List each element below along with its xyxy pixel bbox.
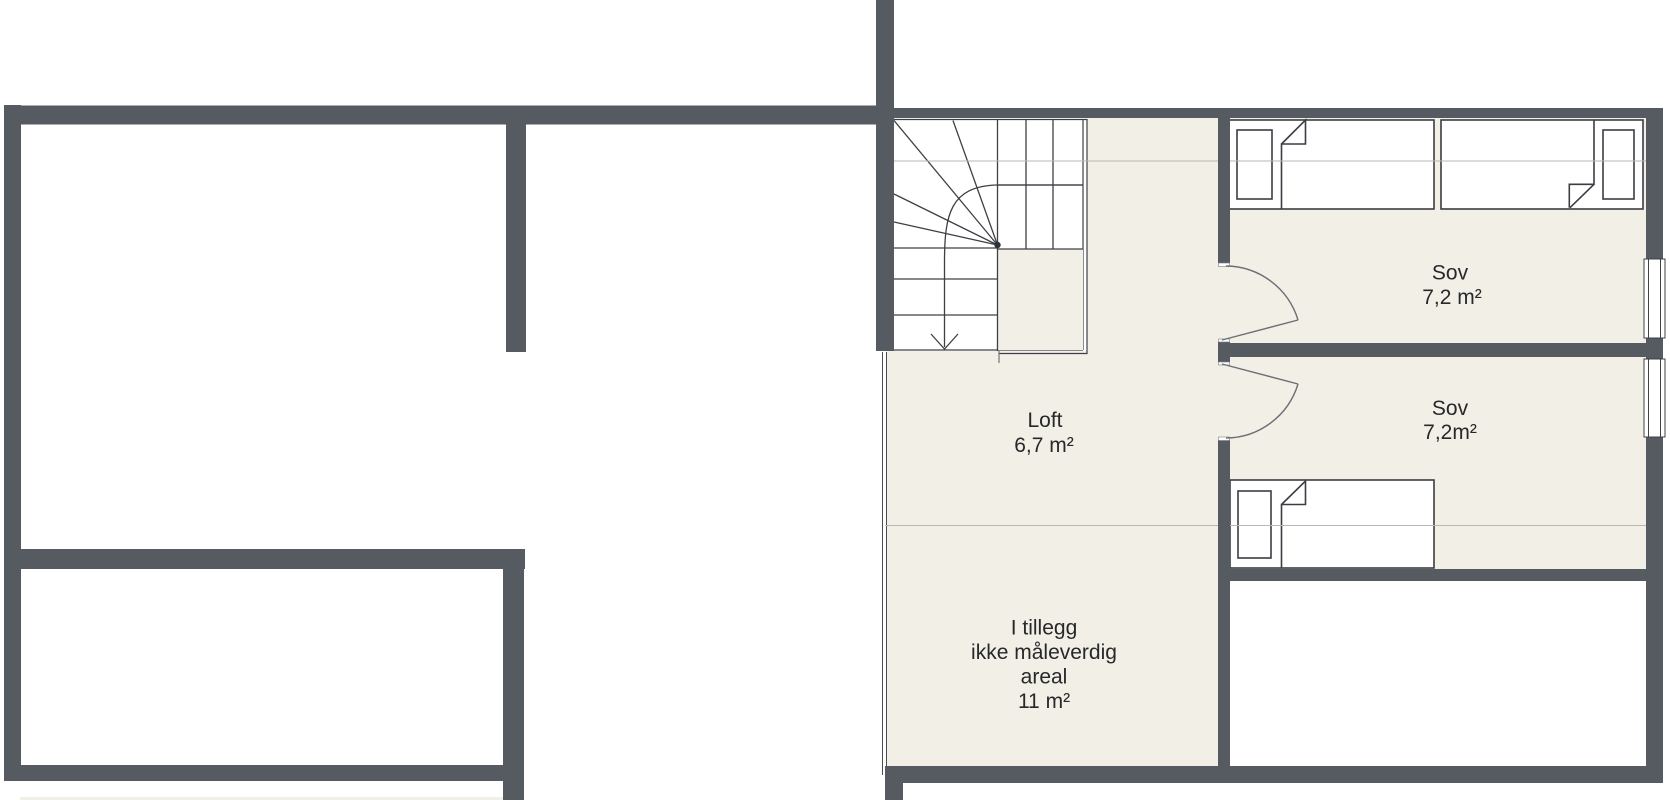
svg-text:areal: areal [1021,666,1068,689]
svg-text:Loft: Loft [1027,409,1062,432]
svg-text:11 m²: 11 m² [1018,690,1070,713]
svg-text:7,2 m²: 7,2 m² [1422,286,1482,309]
svg-text:6,7 m²: 6,7 m² [1014,434,1074,457]
svg-text:Sov: Sov [1432,397,1469,420]
svg-text:7,2m²: 7,2m² [1423,421,1477,444]
svg-text:Sov: Sov [1432,262,1469,285]
svg-text:I tillegg: I tillegg [1011,617,1078,640]
svg-text:ikke måleverdig: ikke måleverdig [971,641,1117,664]
